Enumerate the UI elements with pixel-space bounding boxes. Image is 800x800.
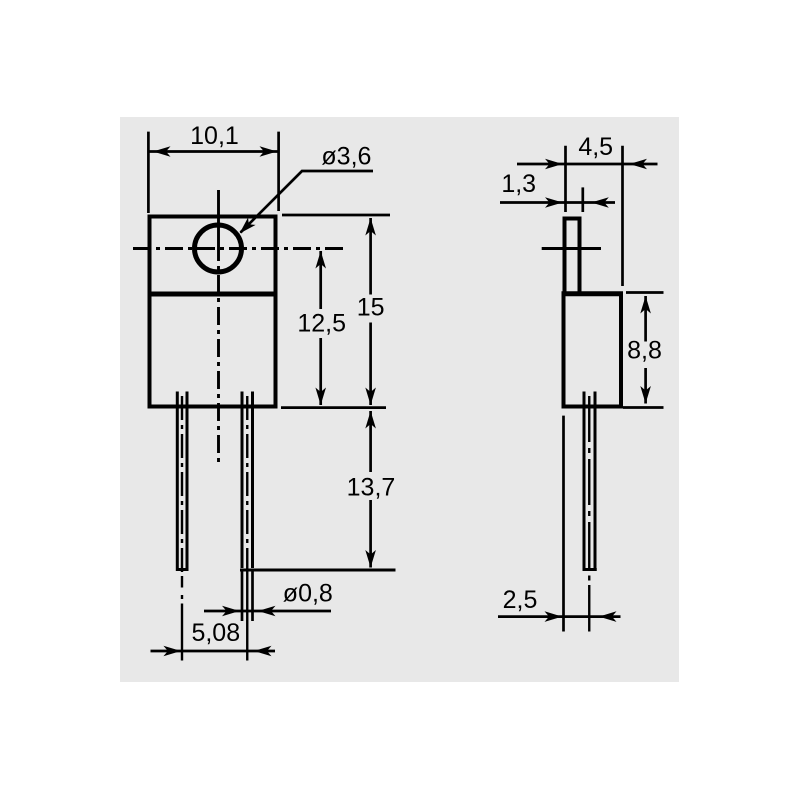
svg-text:15: 15 (357, 294, 385, 322)
svg-text:4,5: 4,5 (578, 133, 613, 161)
svg-text:ø3,6: ø3,6 (321, 143, 371, 171)
svg-text:8,8: 8,8 (627, 337, 662, 365)
svg-text:ø0,8: ø0,8 (283, 580, 333, 608)
svg-text:13,7: 13,7 (347, 474, 396, 502)
svg-text:12,5: 12,5 (297, 309, 346, 337)
svg-text:5,08: 5,08 (191, 619, 240, 647)
svg-text:10,1: 10,1 (190, 122, 239, 150)
svg-text:2,5: 2,5 (503, 586, 538, 614)
svg-text:1,3: 1,3 (501, 170, 536, 198)
